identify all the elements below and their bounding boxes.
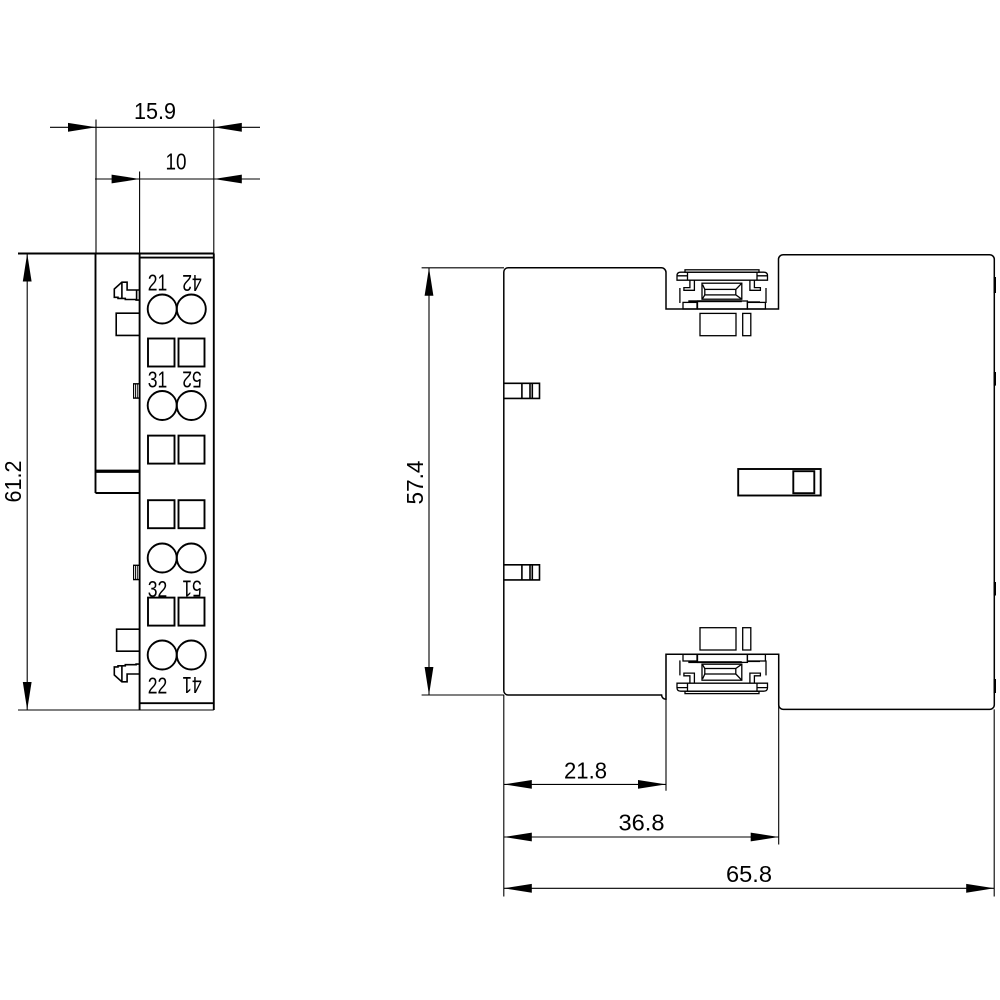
svg-text:22: 22: [148, 672, 168, 698]
svg-text:21.8: 21.8: [564, 757, 607, 783]
svg-text:10: 10: [166, 148, 187, 174]
svg-text:31: 31: [148, 367, 168, 393]
svg-text:42: 42: [182, 270, 202, 296]
svg-text:52: 52: [182, 366, 202, 392]
svg-text:41: 41: [182, 672, 202, 698]
svg-text:21: 21: [148, 269, 168, 295]
svg-text:36.8: 36.8: [619, 810, 665, 836]
svg-text:57.4: 57.4: [402, 460, 428, 504]
svg-text:61.2: 61.2: [0, 461, 26, 503]
svg-text:15.9: 15.9: [134, 98, 176, 124]
svg-text:65.8: 65.8: [726, 861, 772, 887]
